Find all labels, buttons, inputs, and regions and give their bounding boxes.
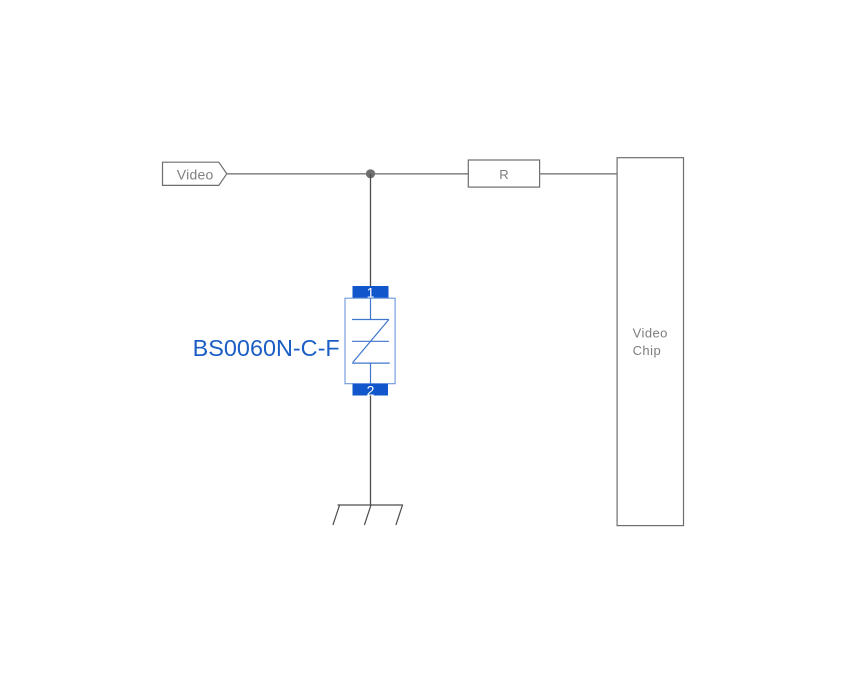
svg-text:BS0060N-C-F: BS0060N-C-F [193, 335, 340, 361]
svg-text:Chip: Chip [633, 343, 662, 358]
svg-text:R: R [499, 167, 508, 182]
svg-text:Video: Video [633, 326, 668, 341]
svg-text:Video: Video [177, 167, 214, 183]
